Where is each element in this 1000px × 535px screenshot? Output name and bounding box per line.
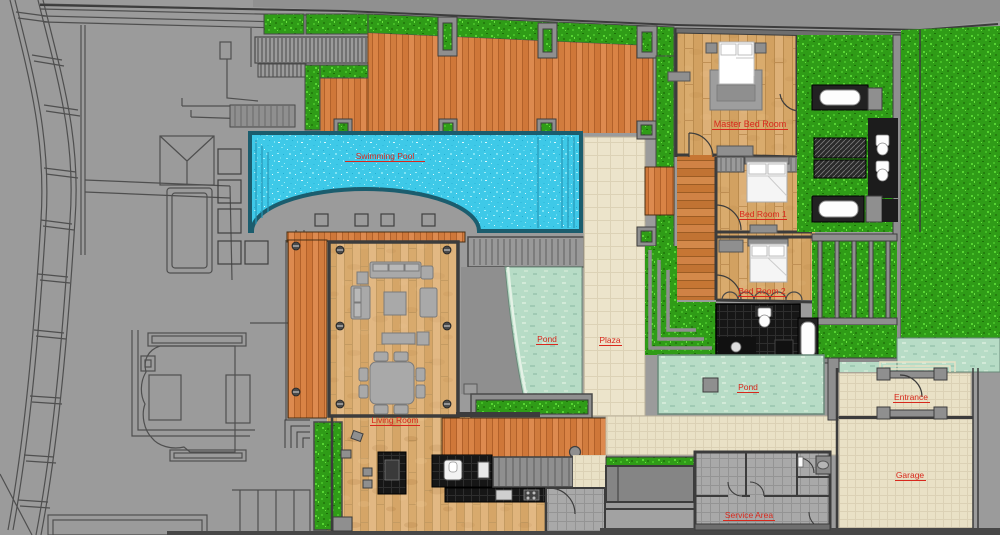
svg-text:Bed Room 1: Bed Room 1 xyxy=(739,209,787,219)
svg-text:Service Area: Service Area xyxy=(725,510,773,520)
svg-text:Garage: Garage xyxy=(896,470,925,480)
svg-text:Living Room: Living Room xyxy=(371,415,418,425)
svg-text:Master Bed Room: Master Bed Room xyxy=(714,119,787,129)
svg-text:Swimming Pool: Swimming Pool xyxy=(356,151,415,161)
svg-text:Entrance: Entrance xyxy=(894,392,928,402)
svg-text:Bed Room 2: Bed Room 2 xyxy=(738,286,786,296)
svg-text:Plaza: Plaza xyxy=(599,335,621,345)
svg-text:Pond: Pond xyxy=(537,334,557,344)
svg-text:Pond: Pond xyxy=(738,382,758,392)
